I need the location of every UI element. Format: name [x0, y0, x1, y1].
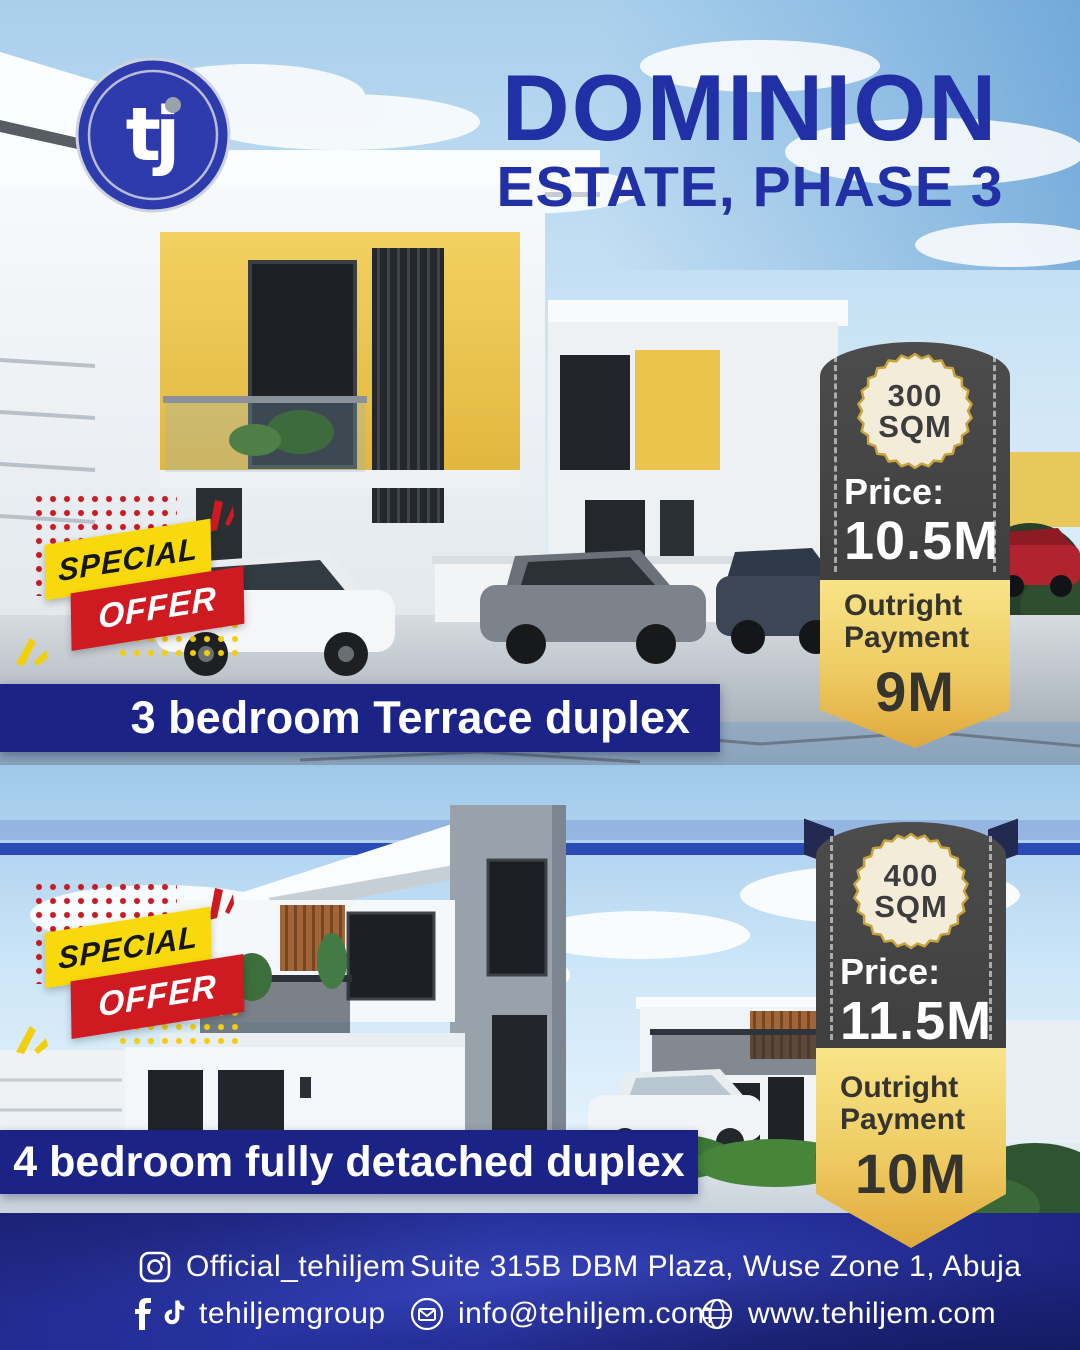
social-row: tehiljemgroup — [133, 1297, 386, 1331]
badge-offer-text: OFFER — [98, 967, 217, 1025]
outright-payment-pennant: Outright Payment 9M — [820, 580, 1010, 748]
instagram-icon — [138, 1250, 172, 1284]
ribbon-dark-panel: 300 SQM Price: 10.5M — [820, 342, 1010, 580]
price-label: Price: — [840, 954, 1006, 990]
website-icon — [700, 1297, 734, 1331]
instagram-row: Official_tehiljem — [138, 1250, 406, 1284]
tiktok-icon — [163, 1298, 189, 1330]
price-label: Price: — [844, 474, 1010, 510]
estate-flyer: tj DOMINION ESTATE, PHASE 3 SPECIAL OFFE… — [0, 0, 1080, 1350]
email-row: info@tehiljem.com — [410, 1297, 714, 1331]
spark-icon — [12, 628, 56, 668]
property-banner-detached: 4 bedroom fully detached duplex — [0, 1130, 698, 1194]
property-banner-terrace: 3 bedroom Terrace duplex — [0, 684, 720, 752]
sqm-seal: 400 SQM — [851, 831, 971, 951]
price-block: Price: 11.5M — [816, 954, 1006, 1048]
sqm-value: 300 — [888, 380, 943, 411]
website-text: www.tehiljem.com — [748, 1297, 996, 1331]
tj-logo-graphic: tj — [74, 56, 232, 214]
title-line2: ESTATE, PHASE 3 — [430, 158, 1070, 218]
sqm-unit: SQM — [874, 891, 948, 922]
outright-label: Outright Payment — [820, 590, 1010, 655]
price-value: 10.5M — [844, 514, 1010, 568]
sqm-seal: 300 SQM — [855, 351, 975, 471]
price-ribbon-400sqm: 400 SQM Price: 11.5M Outright Payment 10… — [816, 822, 1006, 1248]
price-block: Price: 10.5M — [820, 474, 1010, 568]
special-offer-badge-1: SPECIAL OFFER — [16, 492, 261, 682]
website-row: www.tehiljem.com — [700, 1297, 996, 1331]
social-handle: tehiljemgroup — [199, 1297, 386, 1331]
email-icon — [410, 1297, 444, 1331]
outright-value: 10M — [816, 1141, 1006, 1206]
price-value: 11.5M — [840, 994, 1006, 1048]
email-text: info@tehiljem.com — [458, 1297, 714, 1331]
seal-text: 300 SQM — [855, 351, 975, 471]
tj-circle-logo: tj — [74, 56, 232, 214]
outright-line1: Outright — [844, 590, 1010, 622]
address-row: Suite 315B DBM Plaza, Wuse Zone 1, Abuja — [410, 1250, 1021, 1284]
estate-title: DOMINION ESTATE, PHASE 3 — [430, 60, 1070, 218]
outright-value: 9M — [820, 659, 1010, 724]
logo-j-dot — [165, 97, 181, 113]
outright-label: Outright Payment — [816, 1072, 1006, 1137]
banner-text: 3 bedroom Terrace duplex — [131, 692, 690, 744]
title-line1: DOMINION — [430, 60, 1070, 156]
address-text: Suite 315B DBM Plaza, Wuse Zone 1, Abuja — [410, 1250, 1021, 1284]
facebook-icon — [133, 1298, 153, 1330]
special-offer-badge-2: SPECIAL OFFER — [16, 880, 261, 1070]
banner-text: 4 bedroom fully detached duplex — [13, 1138, 684, 1187]
price-ribbon-300sqm: 300 SQM Price: 10.5M Outright Payment 9M — [820, 342, 1010, 748]
outright-line1: Outright — [840, 1072, 1006, 1104]
ribbon-dark-panel: 400 SQM Price: 11.5M — [816, 822, 1006, 1048]
instagram-handle: Official_tehiljem — [186, 1250, 406, 1284]
badge-offer-text: OFFER — [98, 579, 217, 637]
outright-line2: Payment — [844, 622, 1010, 654]
outright-line2: Payment — [840, 1104, 1006, 1136]
outright-payment-pennant: Outright Payment 10M — [816, 1048, 1006, 1248]
sqm-unit: SQM — [878, 411, 952, 442]
sqm-value: 400 — [884, 860, 939, 891]
seal-text: 400 SQM — [851, 831, 971, 951]
spark-icon — [12, 1016, 56, 1056]
